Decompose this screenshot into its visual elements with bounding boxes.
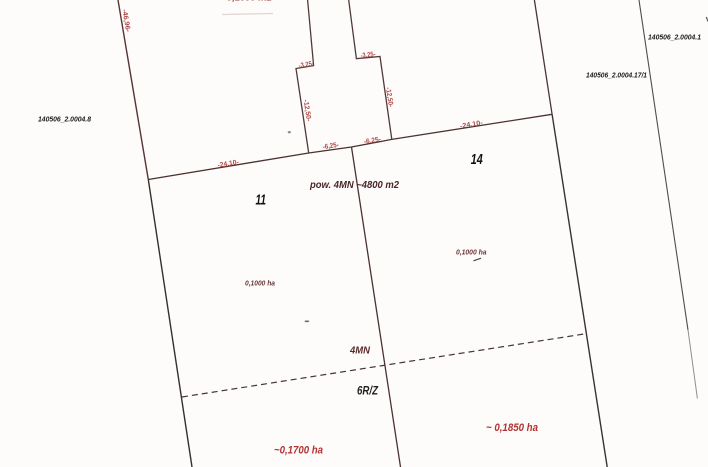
svg-text:140506_2.0004.1: 140506_2.0004.1 [648, 32, 701, 41]
svg-text:6R/Z: 6R/Z [357, 383, 379, 397]
svg-text:14: 14 [471, 152, 483, 168]
svg-text:pow. 4MN ~4800 m2: pow. 4MN ~4800 m2 [309, 180, 399, 191]
svg-text:0,1000 m2: 0,1000 m2 [227, 0, 272, 3]
svg-text:~ 0,1850 ha: ~ 0,1850 ha [486, 422, 538, 434]
svg-text:0,1000 ha: 0,1000 ha [456, 248, 487, 257]
svg-text:0,1000 ha: 0,1000 ha [245, 279, 275, 288]
svg-text:140506_2.0004.17/1: 140506_2.0004.17/1 [586, 70, 647, 79]
svg-text:140506_2.0004.8: 140506_2.0004.8 [38, 115, 92, 124]
svg-text:11: 11 [256, 192, 267, 208]
svg-text:4MN: 4MN [349, 344, 370, 356]
svg-text:~0,1700 ha: ~0,1700 ha [274, 445, 323, 457]
